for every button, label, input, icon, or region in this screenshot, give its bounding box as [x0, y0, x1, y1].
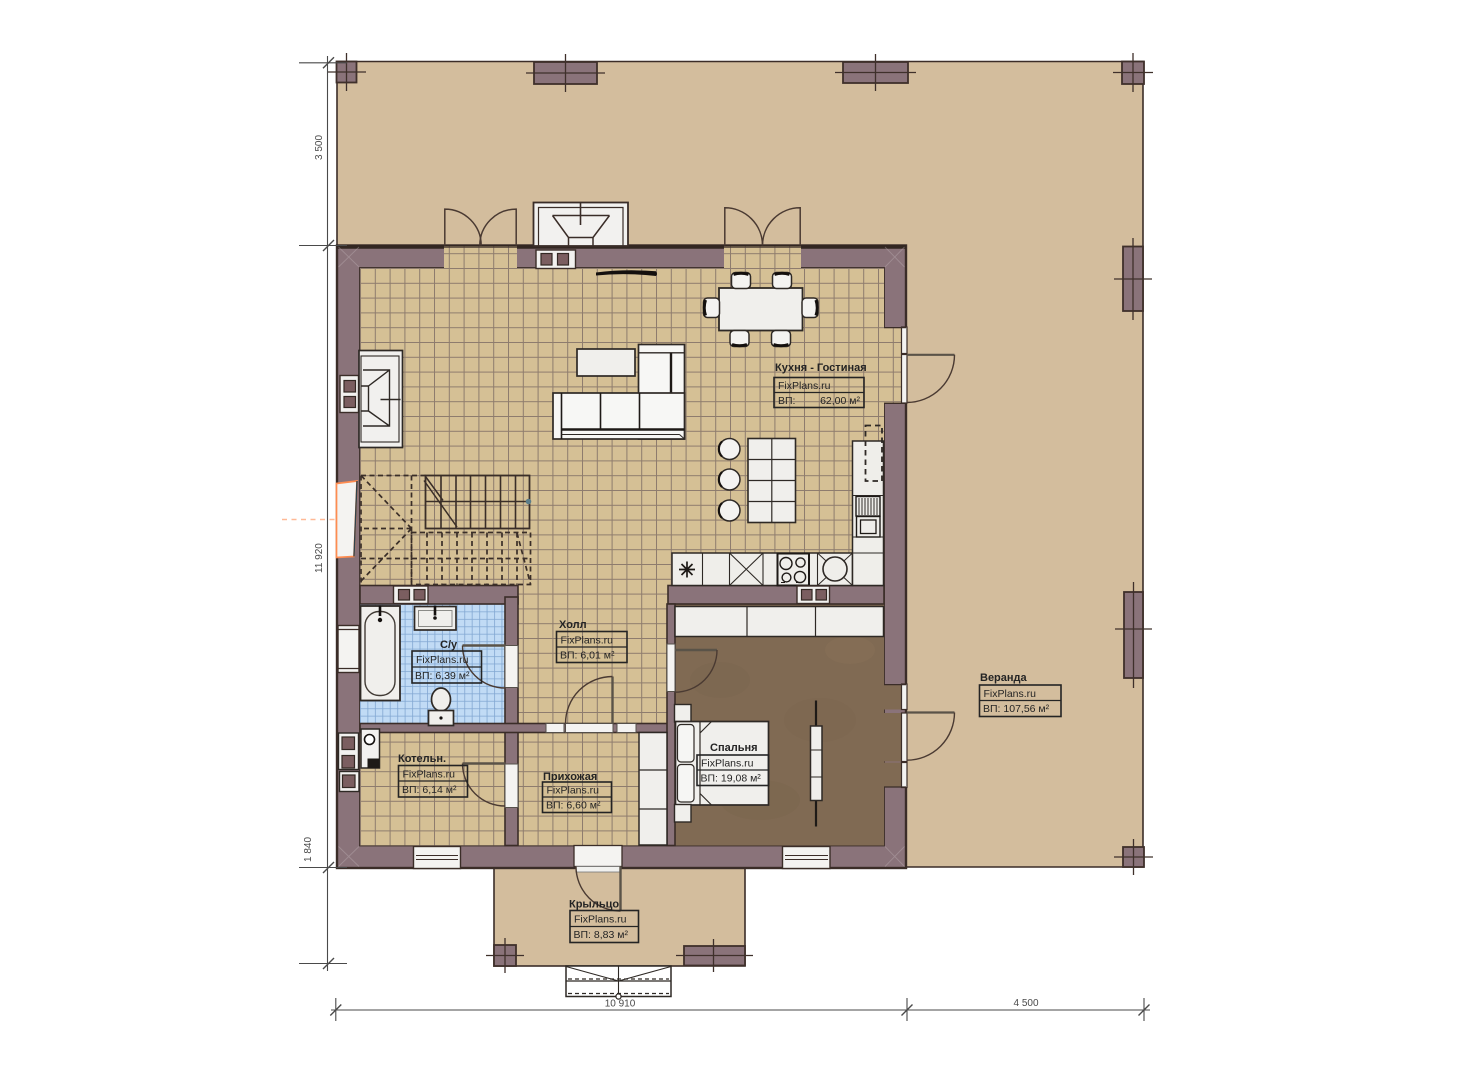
svg-text:FixPlans.ru: FixPlans.ru — [701, 758, 754, 770]
svg-text:Холл: Холл — [559, 619, 587, 631]
svg-text:ВП: 6,01 м²: ВП: 6,01 м² — [560, 650, 615, 662]
svg-text:ВП: 6,60 м²: ВП: 6,60 м² — [546, 800, 601, 812]
svg-text:FixPlans.ru: FixPlans.ru — [778, 380, 831, 392]
svg-text:FixPlans.ru: FixPlans.ru — [547, 785, 600, 797]
svg-text:3 500: 3 500 — [314, 135, 325, 160]
svg-text:10 910: 10 910 — [605, 999, 636, 1010]
svg-text:ВП: 107,56 м²: ВП: 107,56 м² — [983, 703, 1050, 715]
svg-text:Веранда: Веранда — [980, 672, 1028, 684]
svg-text:FixPlans.ru: FixPlans.ru — [574, 914, 627, 926]
svg-text:FixPlans.ru: FixPlans.ru — [403, 769, 456, 781]
svg-text:С/у: С/у — [440, 639, 458, 651]
svg-text:Спальня: Спальня — [710, 742, 758, 754]
svg-text:ВП: 8,83 м²: ВП: 8,83 м² — [574, 929, 629, 941]
svg-text:ВП: 6,14 м²: ВП: 6,14 м² — [402, 784, 457, 796]
svg-text:11 920: 11 920 — [314, 543, 325, 573]
svg-text:62,00 м²: 62,00 м² — [820, 395, 860, 407]
svg-text:4 500: 4 500 — [1013, 998, 1038, 1009]
svg-text:Кухня - Гостиная: Кухня - Гостиная — [775, 362, 867, 374]
svg-text:ВП:: ВП: — [778, 395, 795, 407]
svg-text:FixPlans.ru: FixPlans.ru — [416, 654, 469, 666]
svg-text:ВП: 19,08 м²: ВП: 19,08 м² — [701, 773, 762, 785]
svg-text:FixPlans.ru: FixPlans.ru — [561, 635, 614, 647]
svg-text:FixPlans.ru: FixPlans.ru — [984, 688, 1037, 700]
svg-text:1 840: 1 840 — [303, 837, 314, 862]
svg-text:Крыльцо: Крыльцо — [569, 899, 619, 911]
svg-text:Котельн.: Котельн. — [398, 753, 446, 765]
svg-text:ВП: 6,39 м²: ВП: 6,39 м² — [415, 670, 470, 682]
